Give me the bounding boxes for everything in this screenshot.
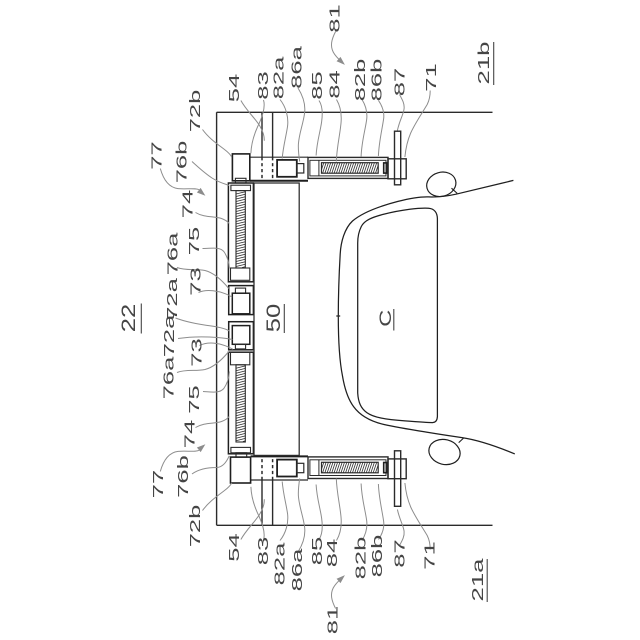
- svg-text:21b: 21b: [476, 42, 493, 85]
- svg-text:76a: 76a: [161, 356, 178, 400]
- svg-text:86b: 86b: [369, 59, 386, 102]
- svg-text:86b: 86b: [369, 535, 386, 578]
- svg-text:87: 87: [392, 539, 409, 567]
- svg-text:21a: 21a: [470, 558, 487, 602]
- svg-text:81: 81: [325, 606, 342, 634]
- svg-text:83: 83: [255, 537, 272, 565]
- svg-text:73: 73: [188, 338, 205, 366]
- svg-text:54: 54: [226, 533, 243, 561]
- svg-text:72b: 72b: [187, 90, 204, 133]
- svg-text:75: 75: [186, 227, 203, 255]
- svg-text:73: 73: [188, 267, 205, 295]
- svg-text:86a: 86a: [289, 548, 306, 592]
- svg-text:77: 77: [150, 470, 167, 498]
- svg-text:C: C: [376, 310, 395, 327]
- svg-text:22: 22: [119, 304, 140, 333]
- svg-text:87: 87: [392, 68, 409, 96]
- svg-text:82b: 82b: [353, 537, 370, 580]
- svg-text:84: 84: [324, 539, 341, 567]
- svg-text:71: 71: [422, 541, 439, 569]
- svg-text:72b: 72b: [187, 505, 204, 548]
- svg-text:75: 75: [186, 385, 203, 413]
- svg-text:84: 84: [327, 70, 344, 98]
- svg-text:83: 83: [255, 71, 272, 99]
- svg-text:82a: 82a: [272, 542, 289, 586]
- svg-text:82a: 82a: [270, 56, 287, 100]
- svg-text:74: 74: [181, 420, 198, 448]
- svg-text:81: 81: [327, 4, 344, 32]
- svg-text:74: 74: [180, 190, 197, 218]
- svg-text:54: 54: [226, 74, 243, 102]
- svg-text:76b: 76b: [173, 141, 190, 184]
- svg-text:86a: 86a: [289, 45, 306, 89]
- svg-text:72a: 72a: [164, 277, 181, 321]
- svg-text:82b: 82b: [352, 59, 369, 102]
- svg-text:77: 77: [149, 141, 166, 169]
- svg-text:76a: 76a: [165, 232, 182, 276]
- svg-text:50: 50: [264, 304, 285, 333]
- svg-text:71: 71: [423, 63, 440, 91]
- svg-text:76b: 76b: [175, 455, 192, 498]
- svg-text:72a: 72a: [161, 314, 178, 358]
- svg-text:85: 85: [309, 71, 326, 99]
